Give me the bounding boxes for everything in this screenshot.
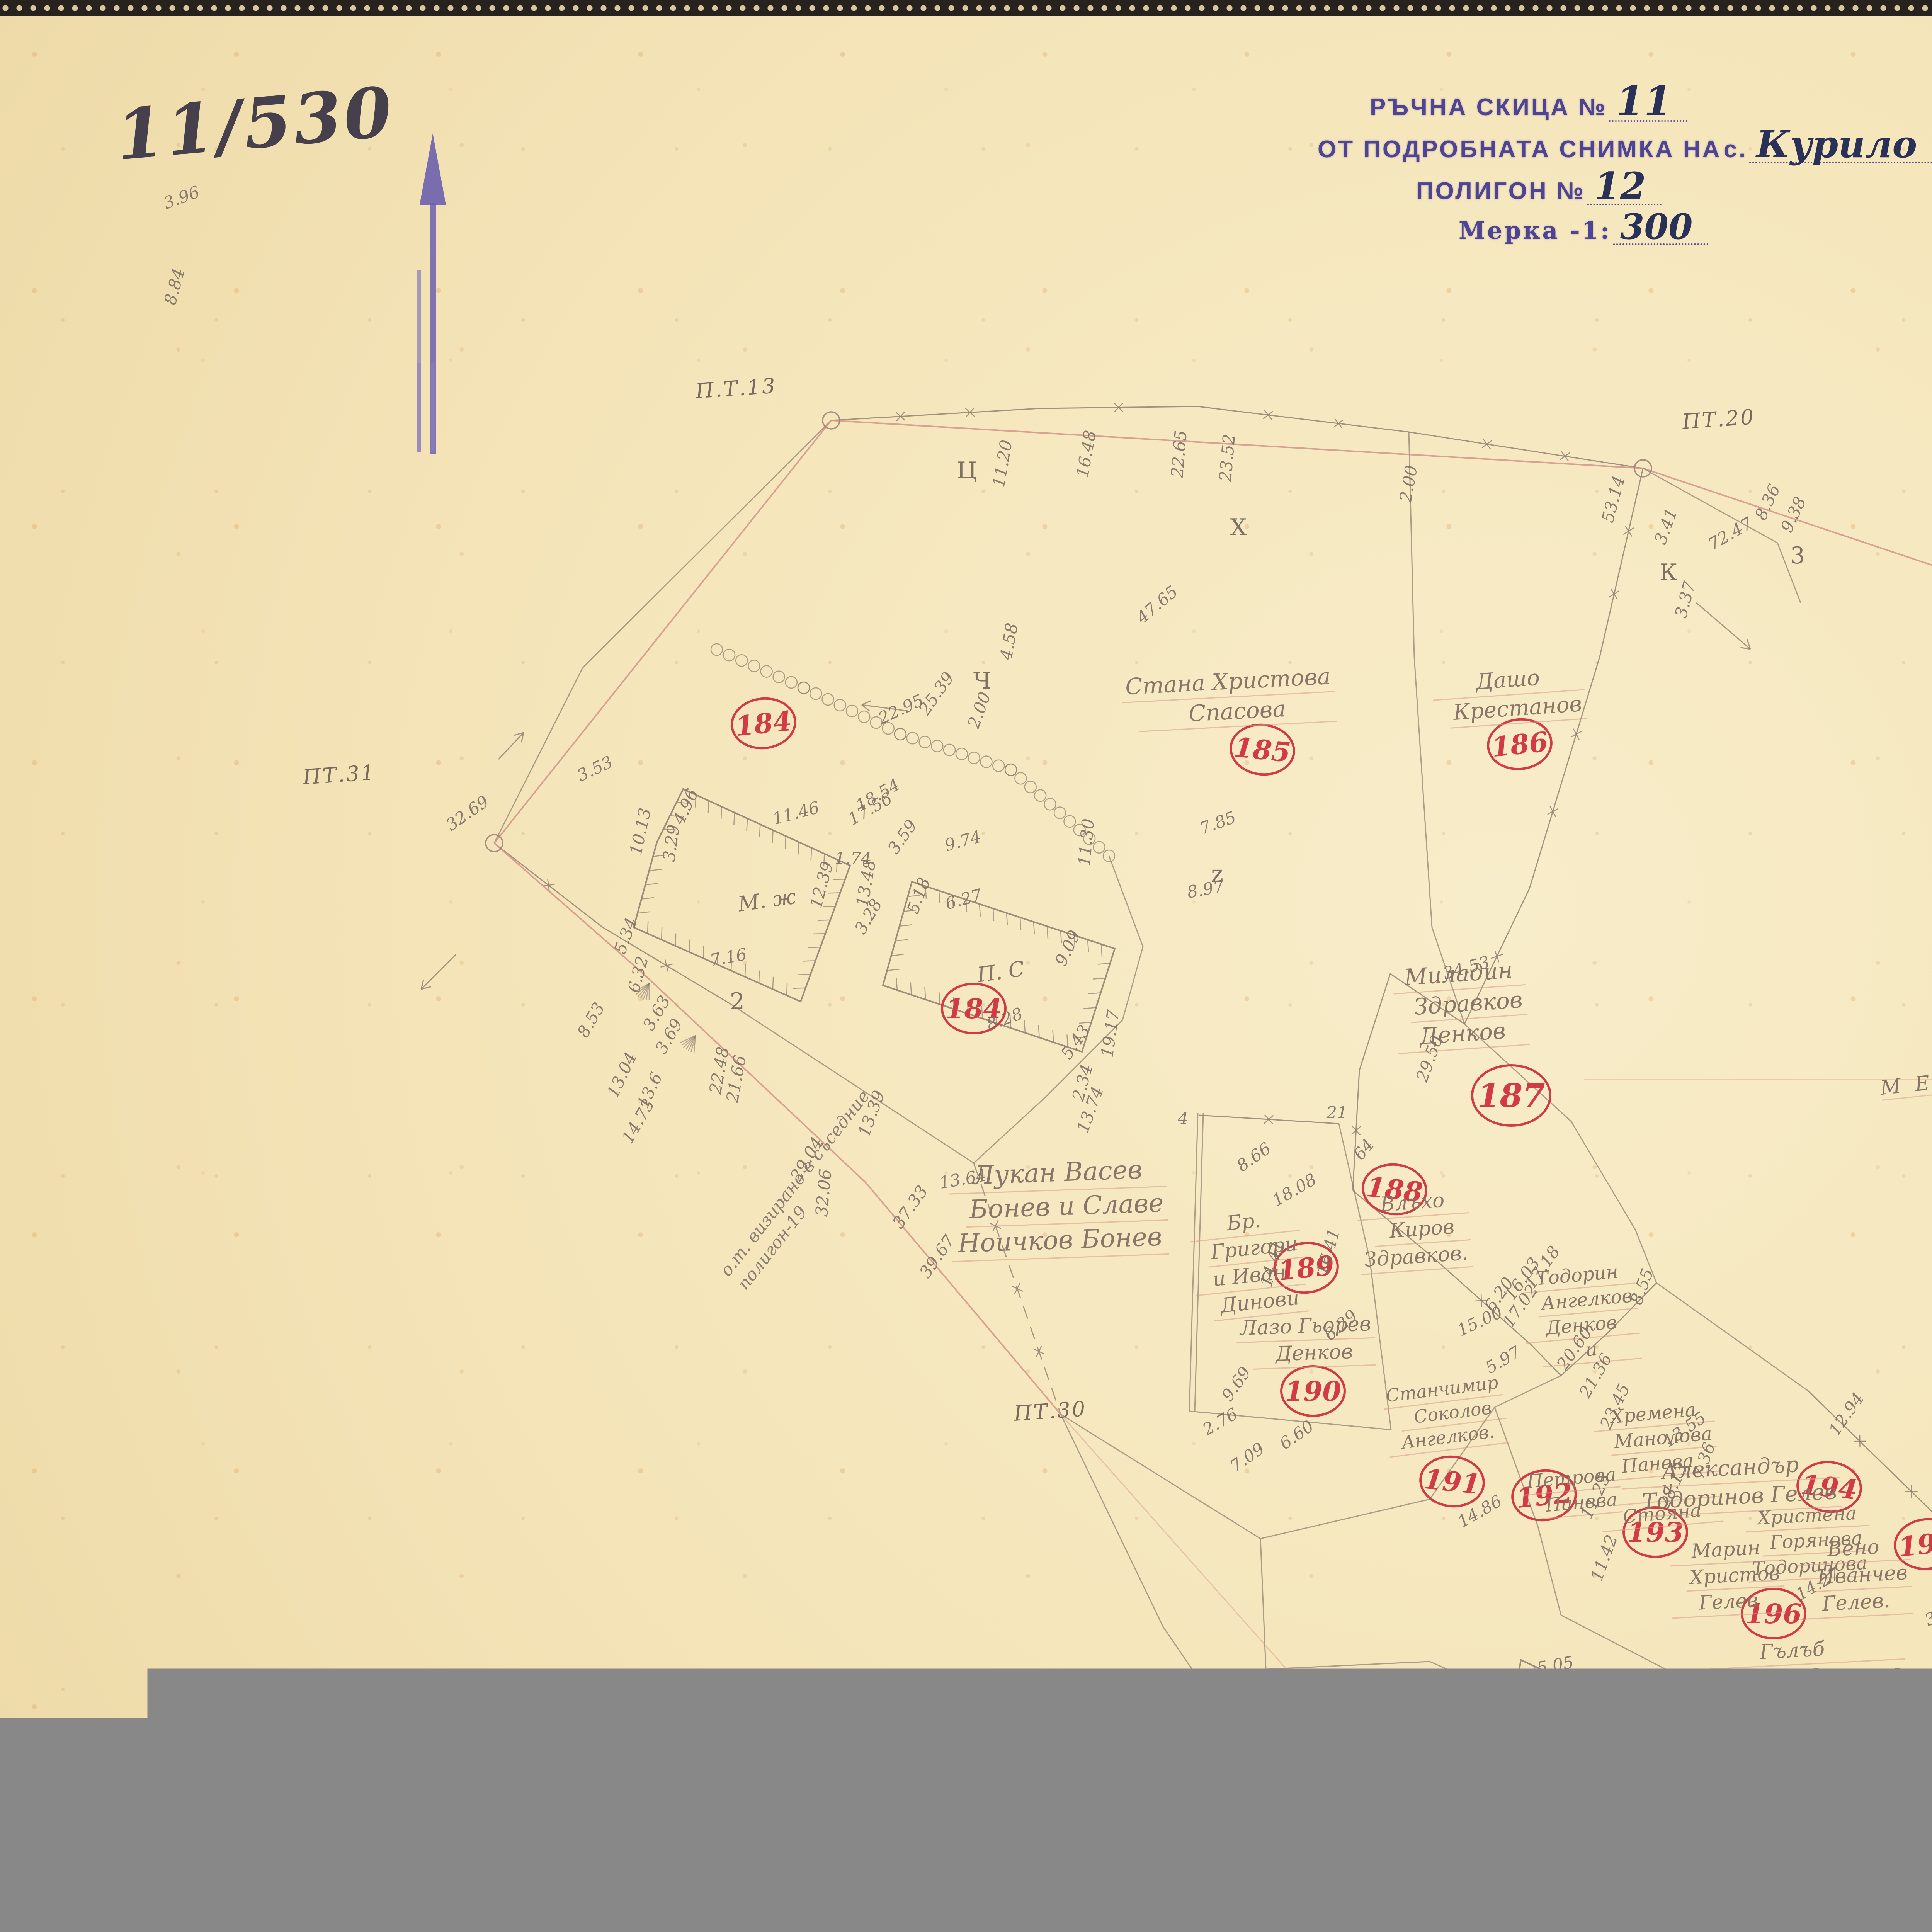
hedge-line (931, 740, 943, 752)
building-hatch (887, 969, 900, 970)
building-hatch (900, 925, 912, 926)
building-hatch (1534, 1667, 1535, 1679)
building-hatch (1522, 1747, 1522, 1760)
hedge-line (798, 682, 810, 694)
building-hatch (1577, 1686, 1577, 1698)
survey-baseline (1061, 1414, 1663, 1932)
survey-baseline (1252, 1673, 1866, 1932)
building-hatch (708, 801, 709, 813)
building-hatch (1448, 1791, 1460, 1794)
building-outline (883, 882, 1115, 1052)
building-hatch (1548, 1673, 1549, 1685)
building-hatch (1559, 1786, 1571, 1788)
building-hatch (1568, 1726, 1572, 1738)
building-hatch (1482, 1729, 1483, 1742)
hedge-line (786, 677, 797, 688)
building-hatch (1034, 922, 1034, 934)
parcel-boundary-line (1266, 1662, 1580, 1727)
hedge-line (723, 649, 735, 661)
parcel-boundary-line (1580, 1727, 1917, 1816)
building-hatch (980, 904, 980, 917)
building-hatch (648, 921, 648, 934)
building-hatch (1537, 1724, 1541, 1736)
boundary-tick (990, 1223, 1001, 1229)
building-hatch (1039, 1025, 1039, 1037)
building-hatch (638, 912, 650, 913)
building-hatch (1047, 926, 1048, 939)
building-hatch (1474, 1809, 1474, 1821)
hedge-line (968, 752, 980, 764)
hedge-line (748, 660, 760, 672)
building-hatch (1093, 978, 1105, 979)
building-hatch (1561, 1765, 1561, 1778)
building-hatch (1460, 1803, 1460, 1816)
parcel-boundary-line (1643, 468, 1777, 543)
building-hatch (696, 795, 696, 807)
building-hatch (1074, 935, 1075, 947)
building-hatch (1101, 944, 1102, 956)
building-hatch (908, 895, 920, 896)
building-hatch (717, 952, 718, 964)
parcel-boundary-line (1656, 1283, 1808, 1391)
building-hatch (1550, 1828, 1563, 1830)
building-hatch (1079, 1022, 1091, 1023)
building-hatch (1495, 1735, 1496, 1748)
hedge-line (956, 748, 968, 760)
boundary-tick (1475, 1300, 1488, 1301)
building-hatch (1577, 1724, 1588, 1728)
building-hatch (1535, 1753, 1536, 1766)
building-hatch (803, 961, 815, 961)
building-hatch (828, 893, 840, 893)
building-hatch (773, 977, 773, 989)
parcel-boundary-line (974, 856, 1143, 1163)
building-hatch (818, 920, 830, 920)
building-hatch (952, 895, 953, 908)
hedge-line (810, 688, 821, 699)
hedge-line (1034, 790, 1046, 801)
hedge-line (883, 723, 894, 734)
building-hatch (1449, 1776, 1461, 1779)
building-hatch (808, 947, 820, 947)
boundary-tick (1033, 1349, 1044, 1354)
building-hatch (785, 836, 786, 849)
parcel-boundary-line (1696, 1789, 1917, 1932)
hedge-line (919, 736, 931, 748)
hedge-line (907, 732, 918, 744)
parcel-boundary-line (1430, 1376, 1561, 1499)
direction-arrow (498, 733, 524, 759)
building-hatch (1509, 1742, 1509, 1754)
parcel-boundary-line (1189, 1411, 1391, 1430)
building-hatch (925, 987, 925, 1000)
building-hatch (1088, 993, 1100, 993)
building-hatch (966, 900, 967, 912)
building-hatch (1553, 1815, 1566, 1816)
building-hatch (982, 1006, 983, 1019)
building-hatch (811, 848, 812, 860)
parcel-boundary-line (1464, 1024, 1656, 1283)
building-hatch (1556, 1800, 1568, 1802)
building-hatch (759, 971, 759, 983)
building-hatch (1451, 1760, 1463, 1764)
hedge-line (1015, 772, 1026, 784)
survey-baseline (494, 420, 831, 843)
building-hatch (1024, 1020, 1025, 1033)
building-hatch (734, 813, 735, 825)
building-hatch (798, 975, 810, 975)
building-hatch (787, 983, 787, 995)
building-hatch (895, 940, 908, 941)
hedge-line (1054, 807, 1066, 819)
building-hatch (925, 886, 926, 899)
building-hatch (1453, 1745, 1465, 1748)
hedge-line (895, 728, 906, 740)
hedge-line (846, 705, 858, 717)
building-hatch (1074, 1037, 1087, 1038)
building-hatch (813, 934, 825, 934)
building-hatch (939, 992, 940, 1004)
building-hatch (1088, 940, 1088, 952)
building-hatch (833, 879, 845, 879)
building-hatch (760, 824, 760, 837)
building-hatch (1521, 1723, 1525, 1735)
parcel-boundary-line (730, 1004, 974, 1163)
parcel-boundary-line (1353, 974, 1464, 1190)
building-hatch (1010, 1015, 1011, 1028)
parcel-boundary-line (1495, 1407, 1561, 1615)
building-hatch (993, 908, 994, 921)
building-hatch (1053, 1030, 1054, 1042)
building-hatch (968, 1001, 968, 1014)
hedge-line (858, 711, 870, 723)
boundary-tick (1573, 729, 1579, 740)
parcel-boundary-line (1561, 1283, 1656, 1376)
hedge-line (980, 756, 992, 768)
building-outline (634, 789, 850, 1002)
building-hatch (1547, 1843, 1560, 1845)
parcel-boundary-line (1464, 468, 1643, 1024)
building-hatch (670, 816, 682, 816)
hedge-line (711, 644, 723, 655)
building-hatch (824, 854, 825, 866)
direction-arrow (1696, 603, 1750, 649)
hedge-line (1074, 824, 1085, 836)
building-hatch (939, 891, 940, 903)
building-hatch (798, 842, 799, 854)
hedge-line (1094, 842, 1105, 853)
building-hatch (1067, 1034, 1068, 1047)
building-hatch (1516, 1687, 1529, 1689)
boundary-tick (1625, 526, 1632, 536)
parcel-boundary-line (1339, 1124, 1391, 1430)
building-hatch (996, 1011, 997, 1023)
hedge-line (1025, 781, 1036, 793)
parcel-boundary-line (494, 843, 730, 1004)
building-hatch (745, 964, 745, 977)
building-hatch (675, 934, 676, 946)
building-hatch (896, 978, 897, 990)
hedge-line (1044, 798, 1056, 810)
boundary-tick (1611, 589, 1617, 599)
hedge-line (834, 699, 846, 711)
building-hatch (689, 940, 690, 952)
building-hatch (1007, 913, 1007, 925)
parcel-boundary-line (1808, 1391, 1932, 1542)
hedge-line (944, 744, 955, 756)
building-outline (1509, 1660, 1591, 1740)
parcel-boundary-line (831, 406, 1643, 468)
building-hatch (904, 910, 916, 911)
building-hatch (1469, 1723, 1470, 1736)
building-hatch (1553, 1725, 1556, 1737)
building-hatch (911, 982, 912, 995)
building-hatch (1515, 1827, 1515, 1839)
parcel-boundary-line (1353, 1190, 1561, 1376)
parcel-boundary-line (1061, 1414, 1696, 1932)
parcel-boundary-line (494, 668, 583, 843)
building-hatch (1512, 1716, 1524, 1719)
hedge-line (736, 655, 747, 666)
building-hatch (793, 988, 806, 988)
building-hatch (662, 927, 662, 940)
survey-baseline (494, 843, 1061, 1414)
hedge-line (773, 671, 785, 683)
building-hatch (703, 946, 704, 958)
building-hatch (891, 954, 903, 956)
building-hatch (1455, 1730, 1467, 1733)
hedge-line (822, 694, 834, 705)
building-hatch (1578, 1708, 1590, 1712)
parcel-boundary-line (1409, 432, 1464, 1024)
building-hatch (837, 860, 837, 872)
hedge-line (871, 717, 882, 728)
boundary-tick (1012, 1286, 1023, 1291)
direction-arrow (421, 954, 456, 989)
building-hatch (747, 818, 748, 831)
survey-baseline (831, 420, 1643, 468)
building-hatch (1543, 1838, 1543, 1851)
parcel-boundary-line (1561, 1615, 1785, 1727)
building-hatch (1563, 1679, 1563, 1692)
boundary-tick (1550, 806, 1556, 817)
building-hatch (1487, 1815, 1488, 1827)
building-hatch (1548, 1760, 1549, 1772)
building-hatch (677, 803, 689, 803)
parcel-boundary-line (583, 420, 831, 668)
building-hatch (653, 855, 665, 857)
hedge-line (1083, 833, 1095, 844)
building-hatch (731, 958, 731, 971)
building-hatch (641, 898, 654, 899)
building-hatch (645, 883, 658, 885)
building-hatch (1519, 1672, 1531, 1675)
building-hatch (1061, 931, 1061, 943)
building-outline (1446, 1717, 1575, 1857)
parcel-boundary-line (1917, 1650, 1932, 1789)
building-hatch (721, 807, 722, 819)
cadastral-drawing (0, 0, 1932, 1932)
building-hatch (1020, 917, 1021, 930)
building-hatch (823, 906, 835, 907)
building-hatch (953, 997, 954, 1009)
parcel-boundary-line (1260, 1539, 1266, 1669)
building-hatch (649, 869, 662, 871)
building-hatch (1529, 1833, 1529, 1845)
hedge-line (761, 666, 772, 677)
building-hatch (663, 829, 676, 830)
direction-arrow-head (862, 701, 871, 705)
survey-baseline (1643, 468, 1932, 759)
building-hatch (1083, 1008, 1096, 1009)
hedge-line (1005, 764, 1017, 776)
building-hatch (1501, 1821, 1502, 1833)
parcel-boundary-line (1777, 543, 1801, 603)
building-hatch (772, 830, 773, 843)
hedge-line (993, 760, 1004, 772)
hedge-line (1064, 816, 1075, 827)
building-hatch (1098, 963, 1110, 964)
scanned-sketch-page: 11/530 РЪЧНА СКИЦА № 11 ОТ ПОДРОБНАТА СН… (0, 0, 1932, 1932)
